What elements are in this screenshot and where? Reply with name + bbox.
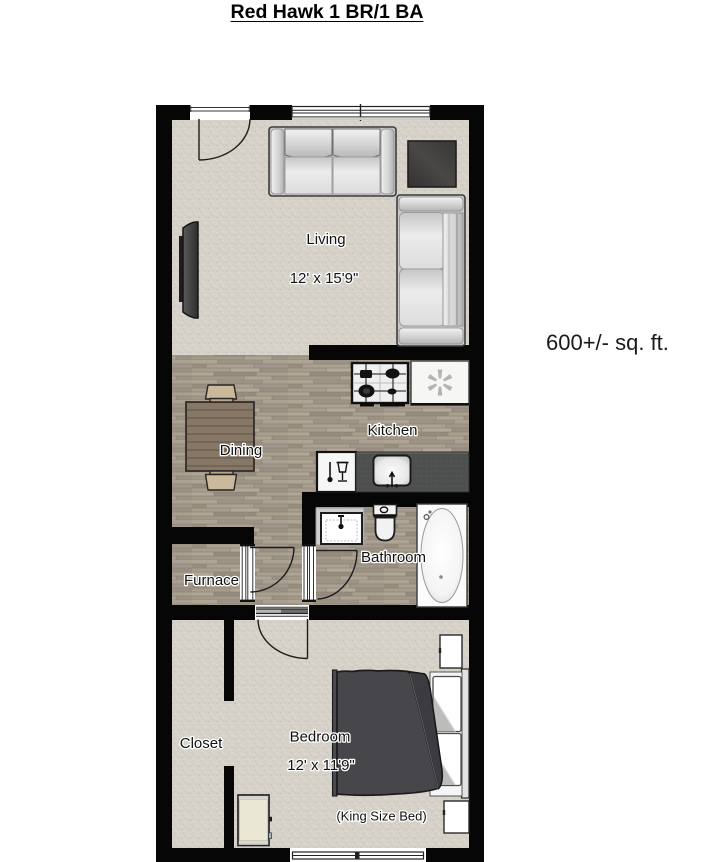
svg-text:12' x 15'9": 12' x 15'9"	[290, 270, 359, 287]
svg-text:Dining: Dining	[220, 442, 263, 459]
svg-text:Bedroom: Bedroom	[290, 729, 351, 746]
svg-text:12' x 11'9": 12' x 11'9"	[287, 757, 355, 774]
svg-text:Kitchen: Kitchen	[367, 422, 417, 439]
svg-text:Bathroom: Bathroom	[361, 549, 426, 566]
svg-text:Furnace: Furnace	[184, 572, 239, 589]
svg-text:Closet: Closet	[180, 735, 223, 752]
svg-text:Living: Living	[306, 231, 345, 248]
svg-text:(King Size Bed): (King Size Bed)	[336, 809, 426, 824]
